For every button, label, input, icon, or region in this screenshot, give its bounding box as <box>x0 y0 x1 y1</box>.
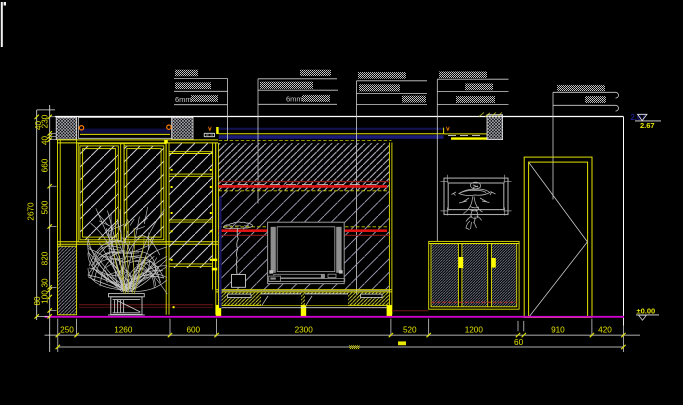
svg-text:100: 100 <box>41 290 50 304</box>
svg-text:80: 80 <box>33 296 42 306</box>
svg-text:40: 40 <box>41 136 50 146</box>
svg-text:6mm: 6mm <box>175 95 192 104</box>
svg-text:2670: 2670 <box>27 202 36 221</box>
svg-text:±0.00: ±0.00 <box>637 307 656 316</box>
svg-text:660: 660 <box>41 158 50 172</box>
svg-text:520: 520 <box>403 326 417 335</box>
svg-text:250: 250 <box>60 326 74 335</box>
svg-text:2300: 2300 <box>295 326 314 335</box>
svg-text:500: 500 <box>41 200 50 214</box>
svg-text:60: 60 <box>514 338 524 347</box>
svg-text:420: 420 <box>598 326 612 335</box>
svg-text:820: 820 <box>41 251 50 265</box>
svg-text:2.67: 2.67 <box>640 121 655 130</box>
svg-text:600: 600 <box>186 326 200 335</box>
svg-text:6mm: 6mm <box>286 95 303 104</box>
svg-text:1260: 1260 <box>114 326 133 335</box>
svg-text:40: 40 <box>34 121 43 131</box>
svg-text:1200: 1200 <box>465 326 484 335</box>
svg-text:910: 910 <box>551 326 565 335</box>
svg-text:30: 30 <box>41 278 50 288</box>
